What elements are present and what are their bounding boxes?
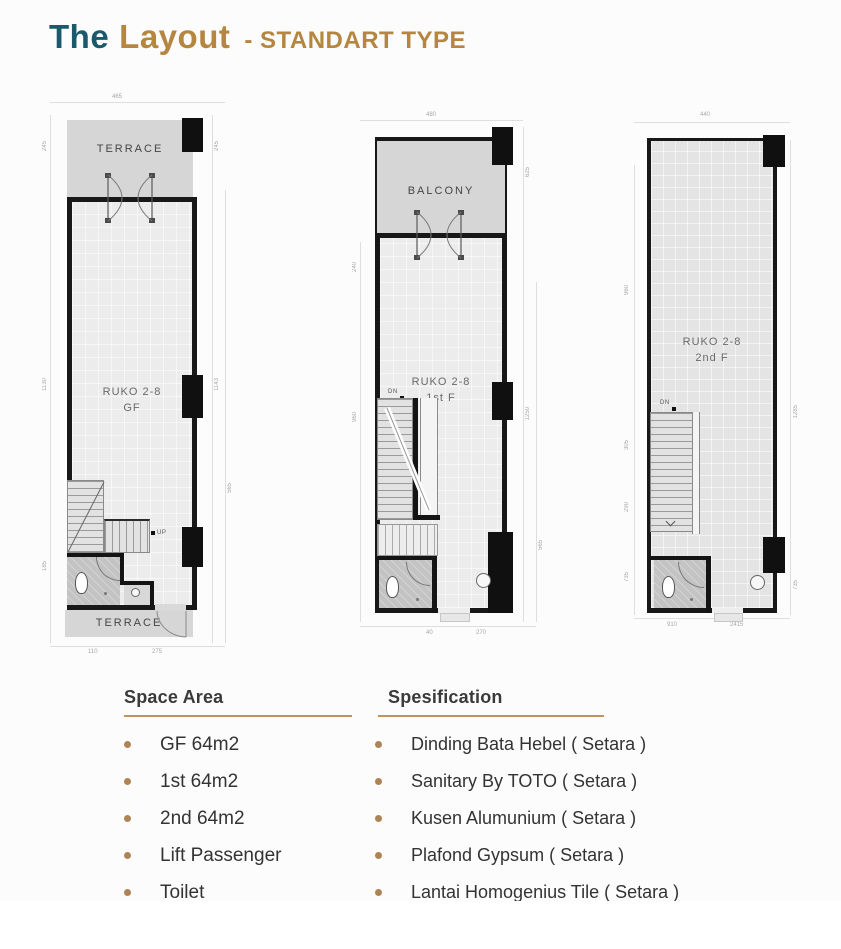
space-area-item-text: 2nd 64m2 [160,808,245,830]
dimension-label: 480 [426,112,436,118]
space-area-item: Lift Passenger [124,837,364,874]
dimension-label: 440 [700,112,710,118]
stair-landing [377,524,438,556]
space-area-item-text: GF 64m2 [160,734,239,756]
specification-item: Dinding Bata Hebel ( Setara ) [375,726,715,763]
dimension-line [50,646,225,647]
specification-item: Kusen Alumunium ( Setara ) [375,800,715,837]
dimension-label: 2415 [730,622,743,628]
bullet-icon [375,852,382,859]
partition-wall [432,556,437,613]
space-area-rule [124,715,352,717]
floor-name: GF [67,401,197,417]
bullet-icon [124,778,131,785]
dimension-label: 735 [793,580,799,590]
floor-drain [416,598,419,601]
dimension-label: 110 [88,649,98,655]
space-area-item-text: Lift Passenger [160,845,281,867]
dimension-line [634,165,635,615]
dimension-label: 910 [667,622,677,628]
dimension-line [536,282,537,622]
bullet-icon [124,815,131,822]
brochure-page: The Layout - STANDART TYPE 465 245 1130 … [0,0,841,949]
title-the: The [49,18,109,56]
specification-item-text: Sanitary By TOTO ( Setara ) [411,771,637,792]
structural-column [492,382,513,420]
dimension-label: 465 [112,94,122,100]
space-area-heading: Space Area [124,687,364,708]
dimension-line [360,626,536,627]
terrace-door-arc [156,610,187,638]
stair-rail [692,412,700,534]
dimension-label: 1143 [214,378,220,391]
dimension-line [212,115,213,643]
room-2nd [647,138,777,613]
floor-drain [690,598,693,601]
dimension-line [790,140,791,615]
specification-item-text: Lantai Homogenius Tile ( Setara ) [411,882,679,903]
dimension-line [523,127,524,622]
dimension-label: 305 [624,440,630,450]
dimension-label: 960 [624,285,630,295]
bullet-icon [375,741,382,748]
title-type: - STANDART TYPE [244,27,466,55]
dimension-label: 1250 [525,407,531,420]
room-2nd-label: RUKO 2-8 2nd F [647,335,777,367]
balcony-label: BALCONY [377,185,505,197]
floorplan-2nd: 440 960 305 290 735 1285 735 910 2415 RU… [612,110,807,670]
dimension-label: 290 [624,502,630,512]
toilet-icon [662,576,675,598]
structural-column [182,118,203,152]
title-layout: Layout [119,18,230,56]
stair-up-marker [151,531,155,535]
partition-wall [706,556,711,613]
bullet-icon [124,889,131,896]
dimension-label: 245 [42,141,48,151]
dimension-label: 1285 [793,405,799,418]
space-area-item: 1st 64m2 [124,763,364,800]
stair-down-label: DN [388,389,398,395]
stair-run [650,412,694,532]
dimension-line [50,102,225,103]
room-gf-label: RUKO 2-8 GF [67,385,197,417]
dimension-label: 40 [426,630,433,636]
dimension-line [360,120,523,121]
door-threshold [714,613,743,622]
bullet-icon [375,815,382,822]
door-threshold [440,613,470,622]
toilet-icon [75,572,88,594]
dimension-line [360,242,361,622]
dimension-line [50,115,51,643]
room-name: RUKO 2-8 [67,385,197,401]
dimension-label: 565 [227,483,233,493]
specification-list: Dinding Bata Hebel ( Setara ) Sanitary B… [375,726,715,911]
floorplan-gf: 465 245 1130 185 245 1143 565 110 275 TE… [60,95,238,665]
stair-up-label: UP [157,530,166,536]
partition-wall [150,585,154,605]
specification-section: Spesification Dinding Bata Hebel ( Setar… [375,687,715,911]
structural-column [182,375,203,418]
dimension-label: 735 [624,572,630,582]
stair-down-label: DN [660,400,670,406]
specification-item: Sanitary By TOTO ( Setara ) [375,763,715,800]
washbasin-icon [750,575,765,590]
structural-column [492,127,513,165]
dimension-label: 1130 [42,378,48,391]
specification-item-text: Plafond Gypsum ( Setara ) [411,845,624,866]
floor-name: 2nd F [647,351,777,367]
toilet-icon [386,576,399,598]
dimension-line [634,122,790,123]
terrace-top-label: TERRACE [67,143,193,155]
space-area-item: GF 64m2 [124,726,364,763]
page-bottom-band [0,901,841,949]
dimension-line [225,190,226,643]
sink-icon [131,588,140,597]
dimension-line [634,618,790,619]
bullet-icon [124,852,131,859]
double-swing-door-icon [100,171,160,225]
structural-column [182,527,203,567]
dimension-label: 625 [525,167,531,177]
page-title: The Layout - STANDART TYPE [49,18,466,56]
dimension-label: 240 [352,262,358,272]
specification-heading: Spesification [388,687,715,708]
dimension-label: 245 [214,141,220,151]
structural-column [488,532,513,613]
dimension-label: 185 [42,561,48,571]
dimension-label: 565 [538,540,544,550]
bullet-icon [375,889,382,896]
specification-item: Plafond Gypsum ( Setara ) [375,837,715,874]
bullet-icon [124,741,131,748]
specification-item-text: Dinding Bata Hebel ( Setara ) [411,734,646,755]
dimension-label: 960 [352,412,358,422]
dimension-label: 270 [476,630,486,636]
floorplan-1st: 480 625 1250 565 240 960 40 270 BALCONY … [368,112,520,652]
room-name: RUKO 2-8 [647,335,777,351]
dimension-label: 275 [152,649,162,655]
space-area-item-text: 1st 64m2 [160,771,238,793]
floor-drain [104,592,107,595]
stair-diagonal [67,480,151,554]
stair-direction-arrow [377,402,439,522]
double-swing-door-icon [409,208,469,262]
stair-marker [672,407,676,411]
space-area-item: 2nd 64m2 [124,800,364,837]
structural-column [763,537,785,573]
specification-rule [378,715,604,717]
structural-column [763,135,785,167]
specification-item-text: Kusen Alumunium ( Setara ) [411,808,636,829]
washbasin-icon [476,573,491,588]
bullet-icon [375,778,382,785]
